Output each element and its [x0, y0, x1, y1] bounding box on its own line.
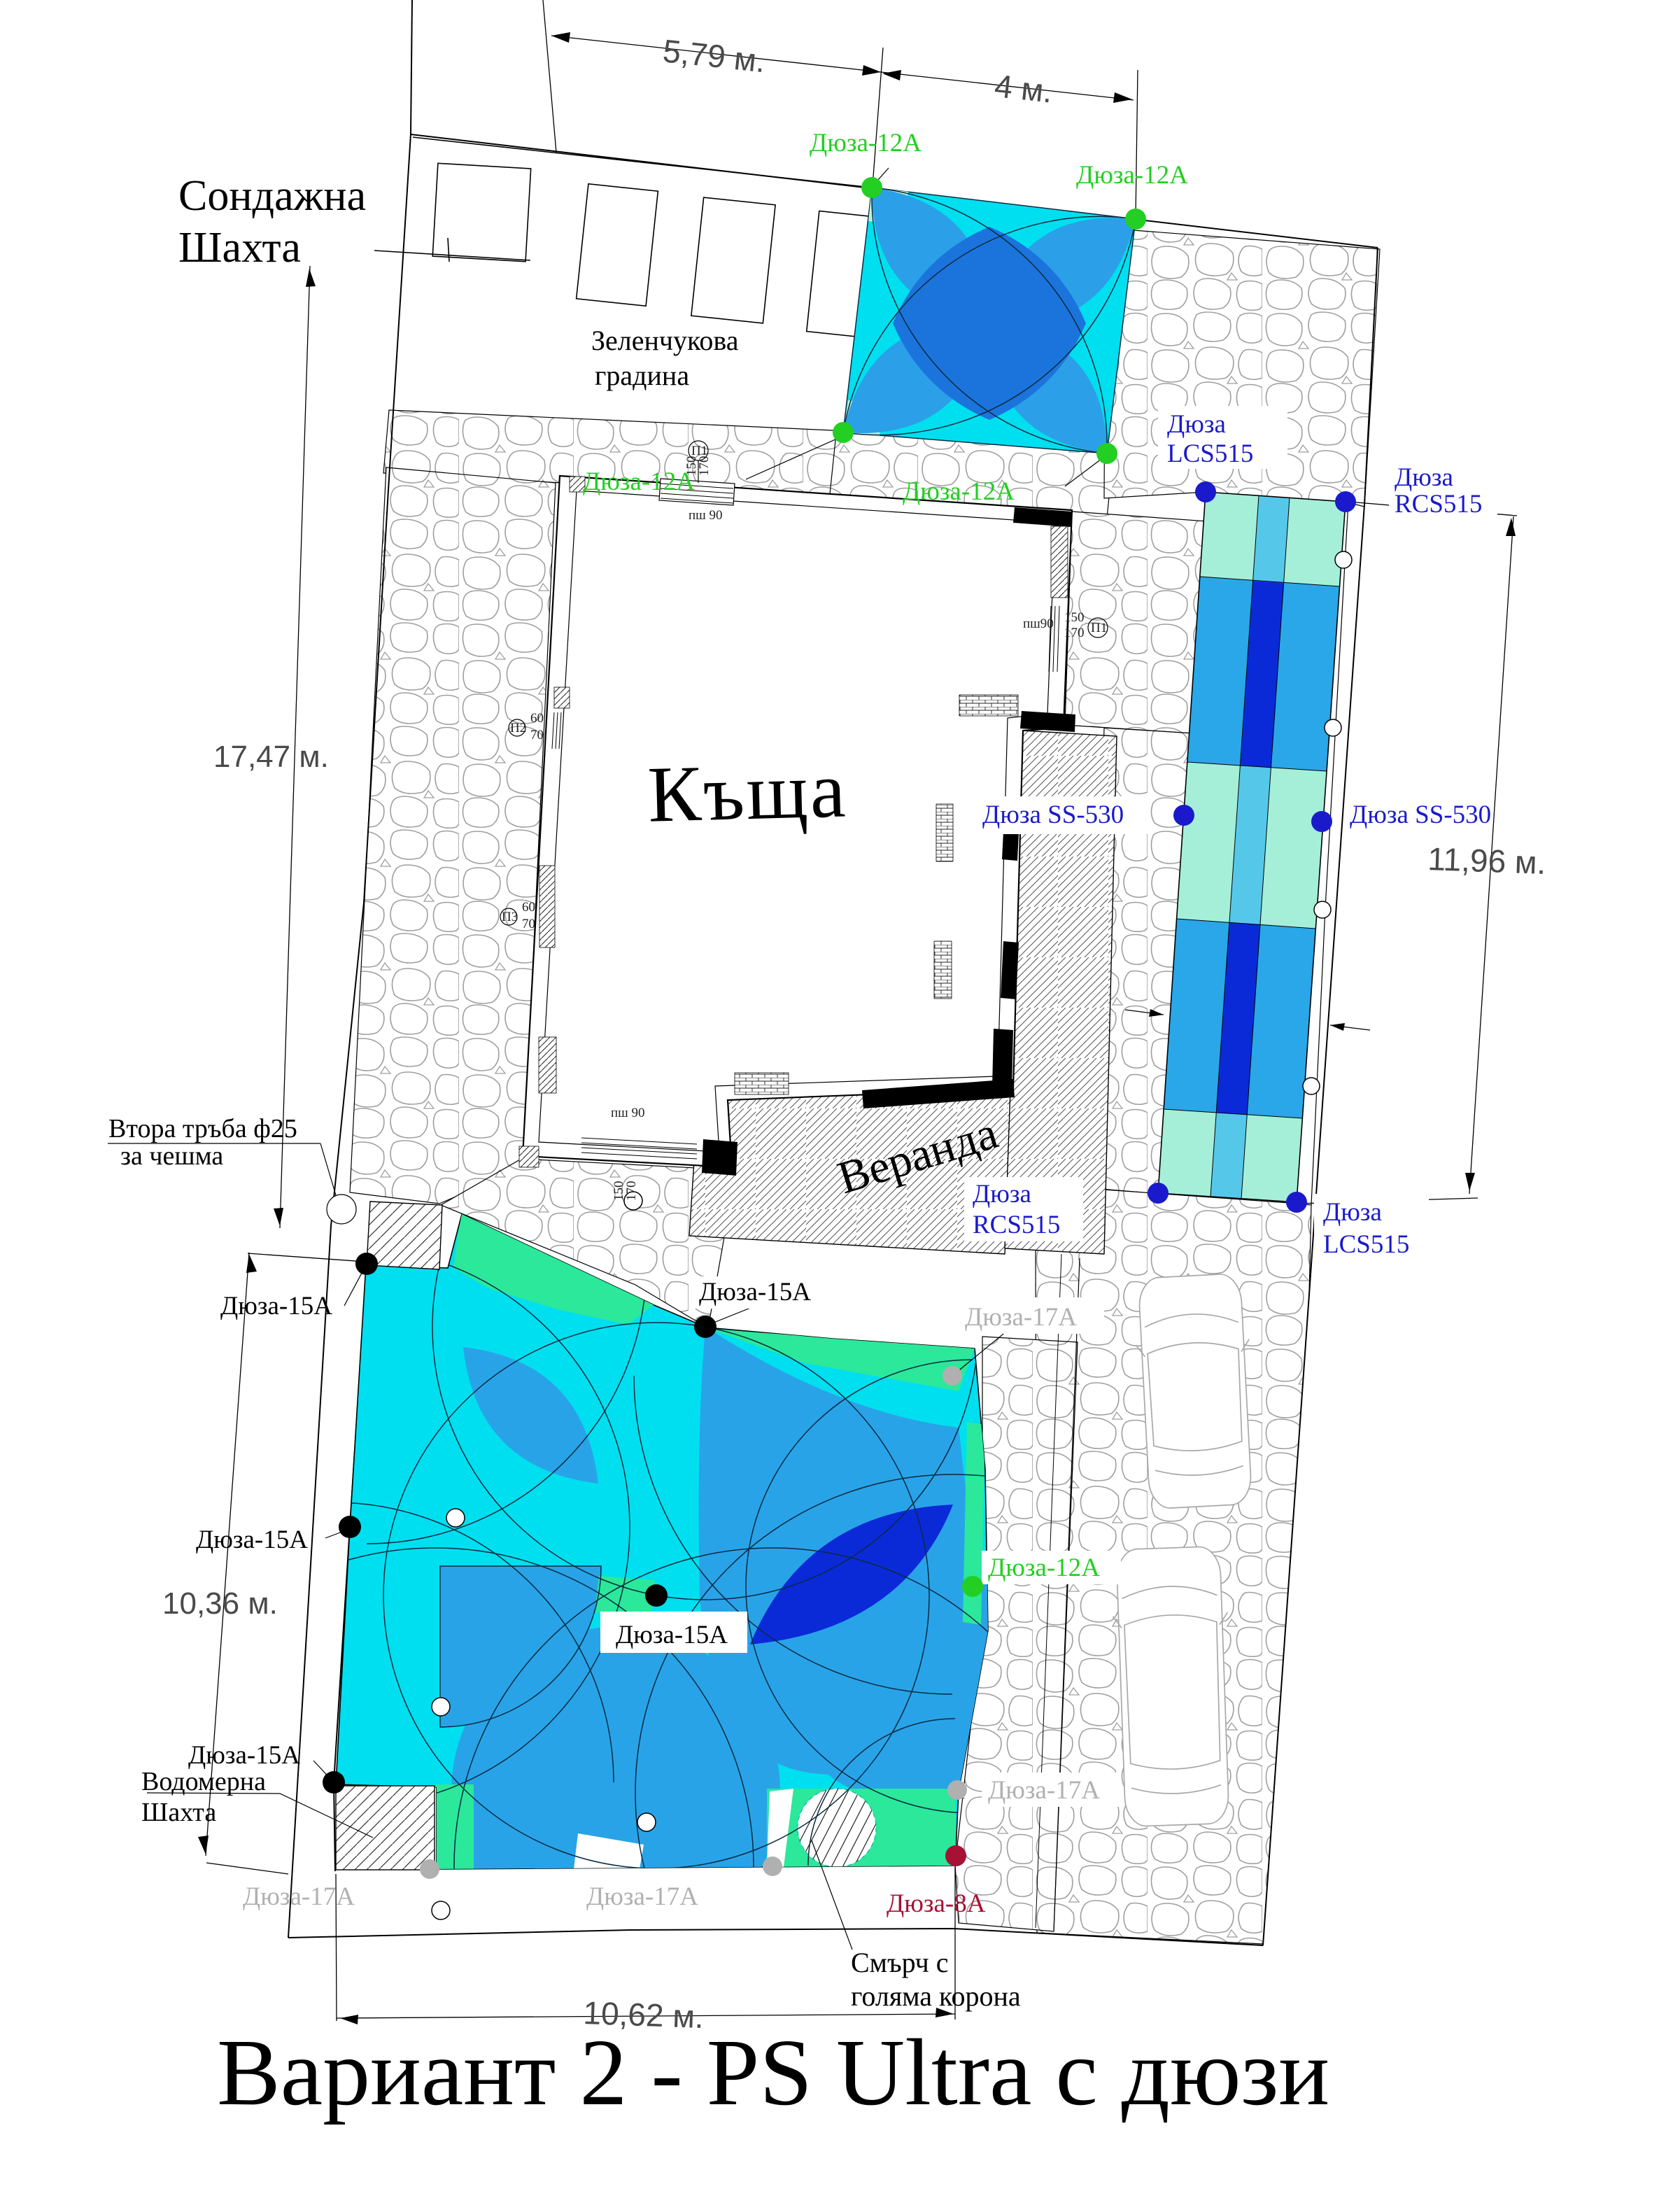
svg-text:Дюза SS-530: Дюза SS-530: [982, 801, 1124, 829]
svg-text:Дюза-12А: Дюза-12А: [1076, 161, 1188, 190]
svg-text:Шахта: Шахта: [178, 224, 301, 272]
svg-text:голяма корона: голяма корона: [851, 1980, 1021, 2012]
svg-text:Дюза SS-530: Дюза SS-530: [1350, 801, 1491, 829]
svg-text:Дюза-15А: Дюза-15А: [616, 1621, 728, 1649]
svg-text:Къща: Къща: [647, 745, 849, 838]
svg-text:4 м.: 4 м.: [993, 67, 1054, 109]
svg-text:пш 90: пш 90: [689, 508, 723, 523]
svg-text:Водомерна: Водомерна: [141, 1767, 266, 1796]
svg-text:Дюза: Дюза: [1395, 463, 1453, 492]
svg-text:170: 170: [697, 456, 712, 477]
svg-text:Втора тръба ф25: Втора тръба ф25: [108, 1114, 297, 1143]
svg-text:Дюза-15А: Дюза-15А: [196, 1526, 308, 1554]
svg-text:Дюза-12А: Дюза-12А: [583, 467, 695, 496]
svg-text:Дюза: Дюза: [973, 1180, 1031, 1209]
svg-text:17,47 м.: 17,47 м.: [213, 740, 329, 774]
svg-text:Вариант 2 - PS Ultra с дюзи: Вариант 2 - PS Ultra с дюзи: [217, 2020, 1329, 2125]
svg-text:Дюза: Дюза: [1323, 1198, 1382, 1227]
svg-text:Дюза-17А: Дюза-17А: [965, 1303, 1077, 1332]
svg-text:LCS515: LCS515: [1323, 1230, 1409, 1259]
svg-text:Дюза-12А: Дюза-12А: [903, 477, 1015, 506]
svg-text:170: 170: [624, 1181, 639, 1202]
svg-text:LCS515: LCS515: [1167, 439, 1253, 468]
svg-text:RCS515: RCS515: [1395, 490, 1482, 519]
svg-text:60: 60: [522, 900, 535, 915]
svg-text:RCS515: RCS515: [973, 1211, 1060, 1239]
svg-text:150: 150: [1064, 610, 1085, 625]
svg-text:Дюза-12А: Дюза-12А: [810, 129, 922, 157]
svg-text:Дюза-15А: Дюза-15А: [699, 1278, 811, 1306]
svg-text:Дюза-15А: Дюза-15А: [220, 1292, 332, 1320]
svg-text:Дюза-8А: Дюза-8А: [887, 1889, 986, 1918]
svg-text:Дюза-17А: Дюза-17А: [586, 1882, 698, 1911]
svg-text:70: 70: [522, 917, 535, 931]
svg-text:Дюза-12А: Дюза-12А: [988, 1554, 1100, 1582]
svg-text:Дюза: Дюза: [1167, 410, 1226, 439]
svg-text:Зеленчукова: Зеленчукова: [591, 325, 739, 356]
svg-text:П2: П2: [510, 721, 526, 735]
svg-text:градина: градина: [595, 360, 689, 391]
svg-text:10,36 м.: 10,36 м.: [162, 1586, 278, 1621]
svg-text:Дюза-17А: Дюза-17А: [243, 1882, 355, 1911]
svg-text:пш90: пш90: [1023, 617, 1054, 631]
svg-text:П1: П1: [1091, 621, 1107, 635]
svg-text:Смърч с: Смърч с: [851, 1947, 949, 1978]
svg-text:Дюза-17А: Дюза-17А: [988, 1776, 1100, 1805]
svg-text:пш 90: пш 90: [611, 1106, 645, 1120]
svg-text:Сондажна: Сондажна: [178, 172, 366, 220]
svg-text:за чешма: за чешма: [120, 1141, 223, 1171]
svg-text:11,96 м.: 11,96 м.: [1427, 840, 1547, 881]
svg-text:170: 170: [1064, 626, 1085, 640]
svg-text:П3: П3: [502, 910, 518, 924]
svg-text:Шахта: Шахта: [141, 1798, 216, 1827]
svg-text:Дюза-15А: Дюза-15А: [188, 1741, 300, 1770]
svg-text:70: 70: [530, 728, 544, 742]
svg-text:60: 60: [530, 711, 544, 726]
